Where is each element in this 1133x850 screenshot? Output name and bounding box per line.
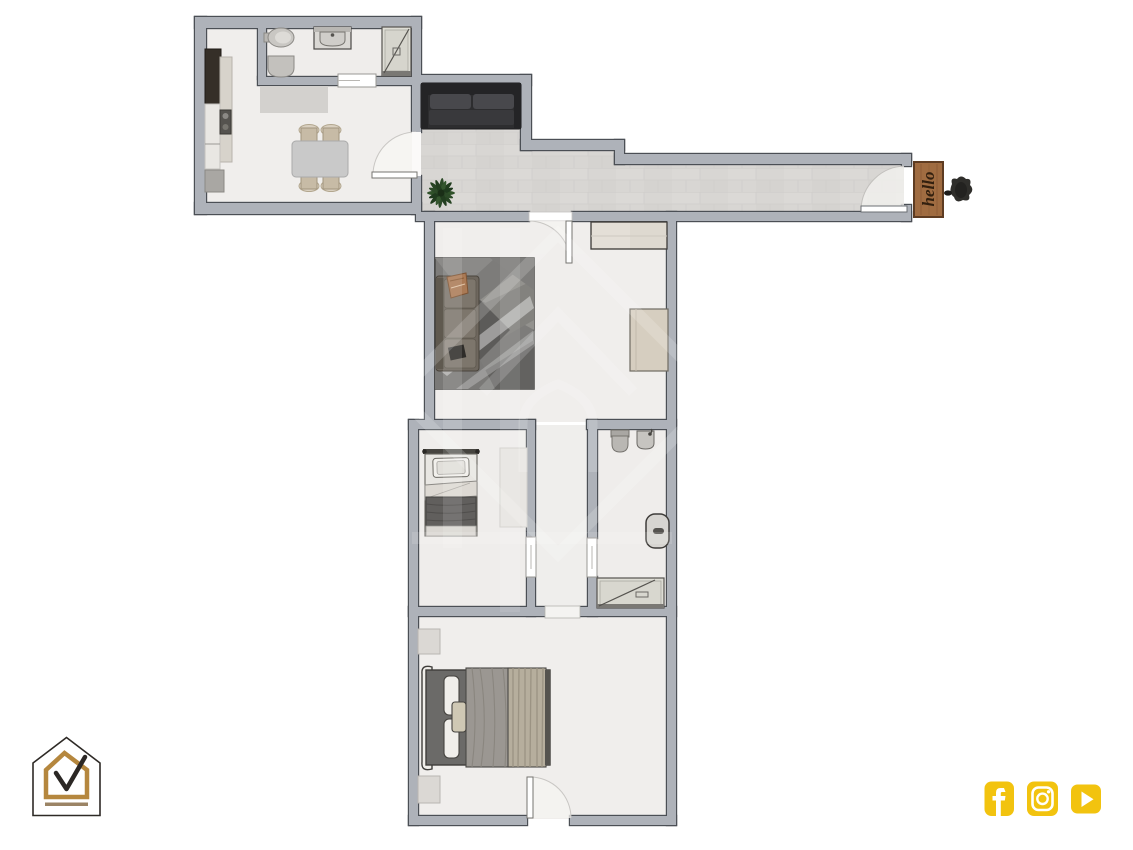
svg-text:hello: hello — [919, 172, 938, 207]
